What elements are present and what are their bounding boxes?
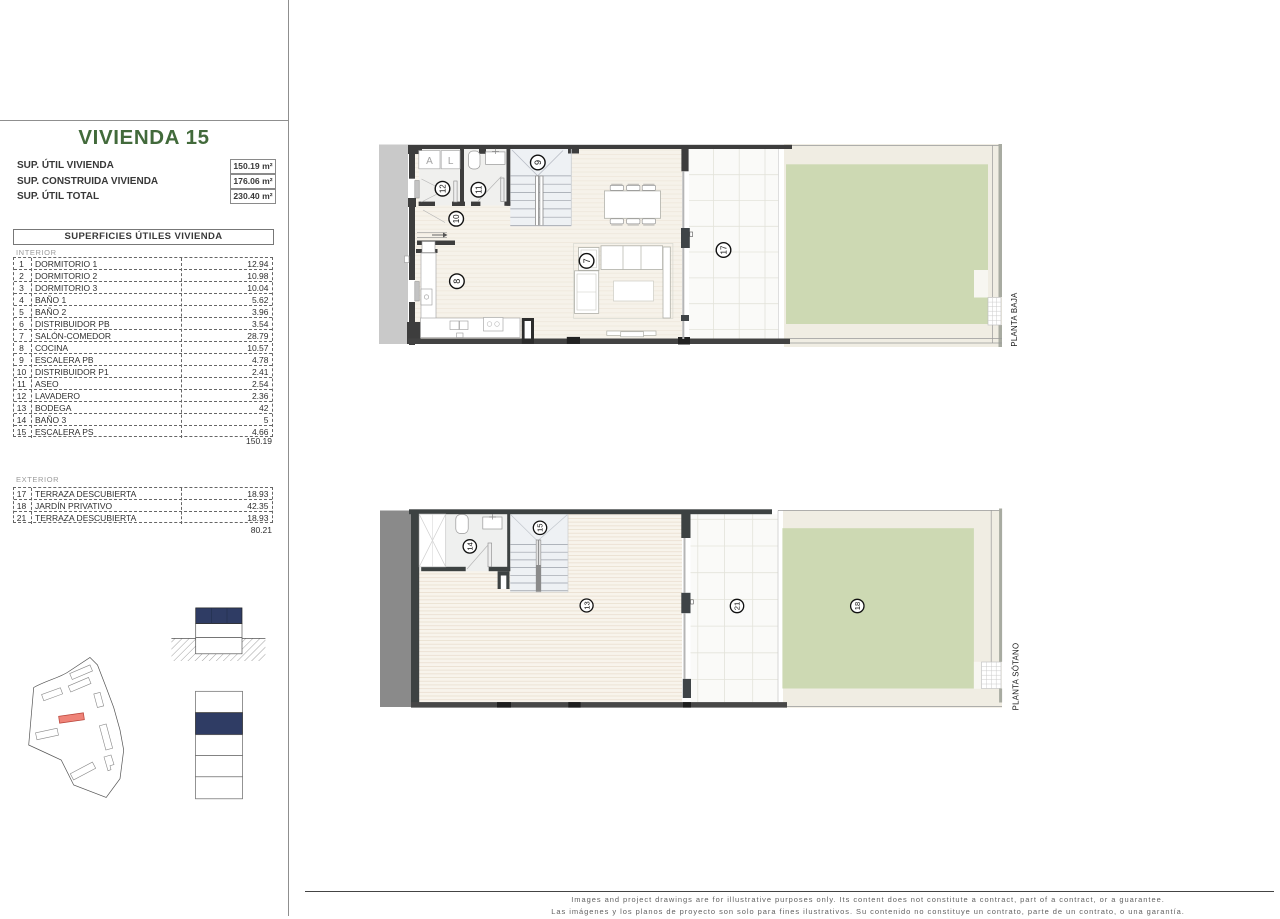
svg-text:L: L (448, 156, 454, 167)
svg-text:17: 17 (719, 245, 728, 254)
svg-text:18: 18 (853, 602, 862, 610)
svg-text:13: 13 (582, 601, 591, 609)
svg-text:PLANTA BAJA: PLANTA BAJA (1010, 292, 1019, 347)
svg-text:14: 14 (465, 542, 474, 550)
svg-text:A: A (426, 156, 433, 167)
svg-text:9: 9 (533, 160, 543, 165)
svg-text:12: 12 (438, 184, 447, 193)
svg-text:15: 15 (536, 524, 545, 532)
svg-text:8: 8 (452, 279, 462, 284)
svg-text:11: 11 (474, 185, 483, 194)
svg-text:21: 21 (733, 602, 742, 610)
svg-text:PLANTA SÓTANO: PLANTA SÓTANO (1012, 643, 1021, 711)
svg-text:10: 10 (452, 214, 461, 223)
svg-text:7: 7 (582, 258, 592, 263)
